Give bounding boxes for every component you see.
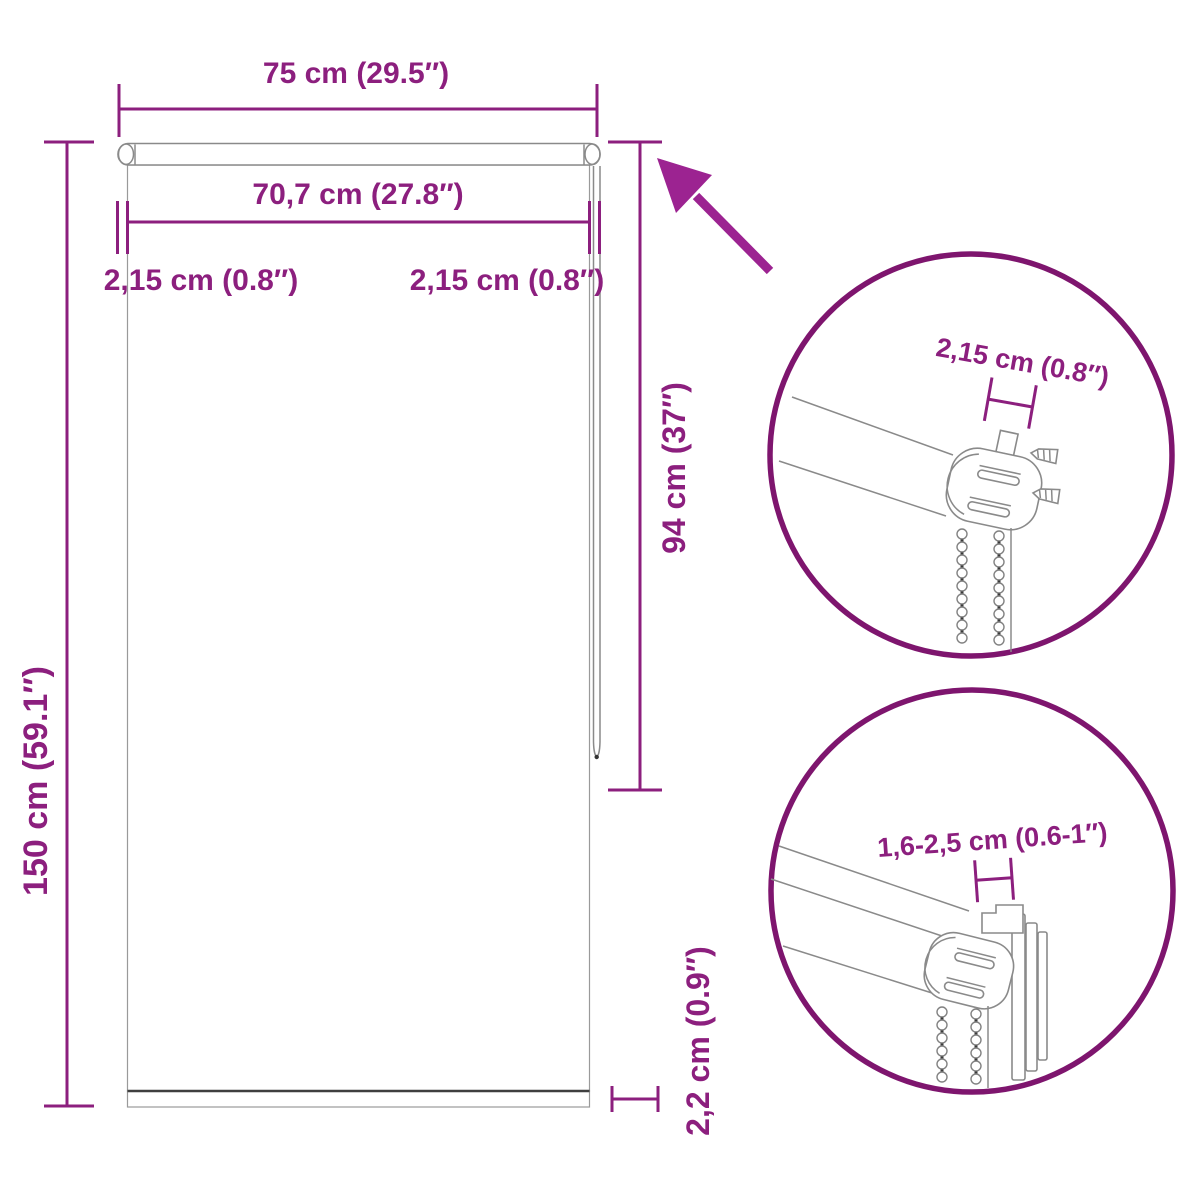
dim-label-side-offset-right: 2,15 cm (0.8″) xyxy=(410,264,604,297)
blind-roller-tube xyxy=(118,144,600,166)
chain-end-bead xyxy=(595,755,599,759)
blind-chain-loop xyxy=(594,166,601,759)
bracket-plate-1 xyxy=(1012,914,1025,1080)
dim-label-total-width: 75 cm (29.5″) xyxy=(263,57,449,90)
dim-label-total-height: 150 cm (59.1″) xyxy=(17,666,55,896)
arrow-shaft xyxy=(696,196,770,271)
screw-icon-top xyxy=(1030,446,1058,463)
bead-chain-strand xyxy=(957,529,967,643)
bead-chain-strand xyxy=(937,1007,947,1082)
dimension-chain-length: 94 cm (37″) xyxy=(608,142,692,790)
dimension-total-height: 150 cm (59.1″) xyxy=(17,142,94,1106)
chain-loop-bottom xyxy=(594,742,601,756)
dimension-fabric-width: 70,7 cm (27.8″) xyxy=(118,178,600,254)
detail-view-top: 2,15 cm (0.8″) xyxy=(770,254,1172,656)
detail-end-cap-bottom xyxy=(918,927,1019,1014)
bead-chain-strand xyxy=(971,1009,981,1084)
detail-circle-bottom xyxy=(771,690,1173,1092)
detail-tube-mid-edge xyxy=(771,879,957,941)
bracket-clamp xyxy=(982,905,1023,933)
detail-end-cap-top xyxy=(940,443,1046,535)
bracket-bar xyxy=(976,878,1012,881)
bracket-bar xyxy=(988,399,1032,407)
detail-arrow-icon xyxy=(657,158,770,271)
blind-fabric-panel xyxy=(128,165,590,1091)
detail-bracket-top xyxy=(984,377,1036,428)
end-cap-body xyxy=(941,443,1046,535)
dim-label-bottom-bar: 2,2 cm (0.9″) xyxy=(680,946,716,1136)
roller-tube-body xyxy=(118,144,600,166)
blind-bottom-bar xyxy=(128,1091,590,1107)
roller-blind-dimension-diagram: 75 cm (29.5″) 70,7 cm (27.8″) 2,15 cm (0… xyxy=(0,0,1200,1200)
dim-label-side-offset-left: 2,15 cm (0.8″) xyxy=(104,264,298,297)
end-cap-body xyxy=(919,927,1019,1014)
bracket-plate-2 xyxy=(1026,923,1037,1071)
detail-tube-bottom-edge xyxy=(779,461,946,516)
detail-bracket-bottom xyxy=(975,858,1014,902)
bracket-plate-3 xyxy=(1038,932,1047,1060)
bottom-bar-body xyxy=(128,1091,590,1107)
detail-tube-bottom-edge xyxy=(783,946,932,993)
dim-label-chain-length: 94 cm (37″) xyxy=(656,382,692,554)
detail-view-bottom: 1,6-2,5 cm (0.6-1″) xyxy=(771,690,1173,1092)
detail-tube-top-edge xyxy=(792,397,953,455)
bead-chain-strand xyxy=(994,531,1004,645)
dimension-bottom-bar: 2,2 cm (0.9″) xyxy=(612,946,716,1136)
dimension-total-width: 75 cm (29.5″) xyxy=(119,57,597,137)
detail-label-top: 2,15 cm (0.8″) xyxy=(934,332,1112,392)
dim-label-fabric-width: 70,7 cm (27.8″) xyxy=(252,178,463,211)
detail-label-bottom: 1,6-2,5 cm (0.6-1″) xyxy=(876,817,1108,863)
